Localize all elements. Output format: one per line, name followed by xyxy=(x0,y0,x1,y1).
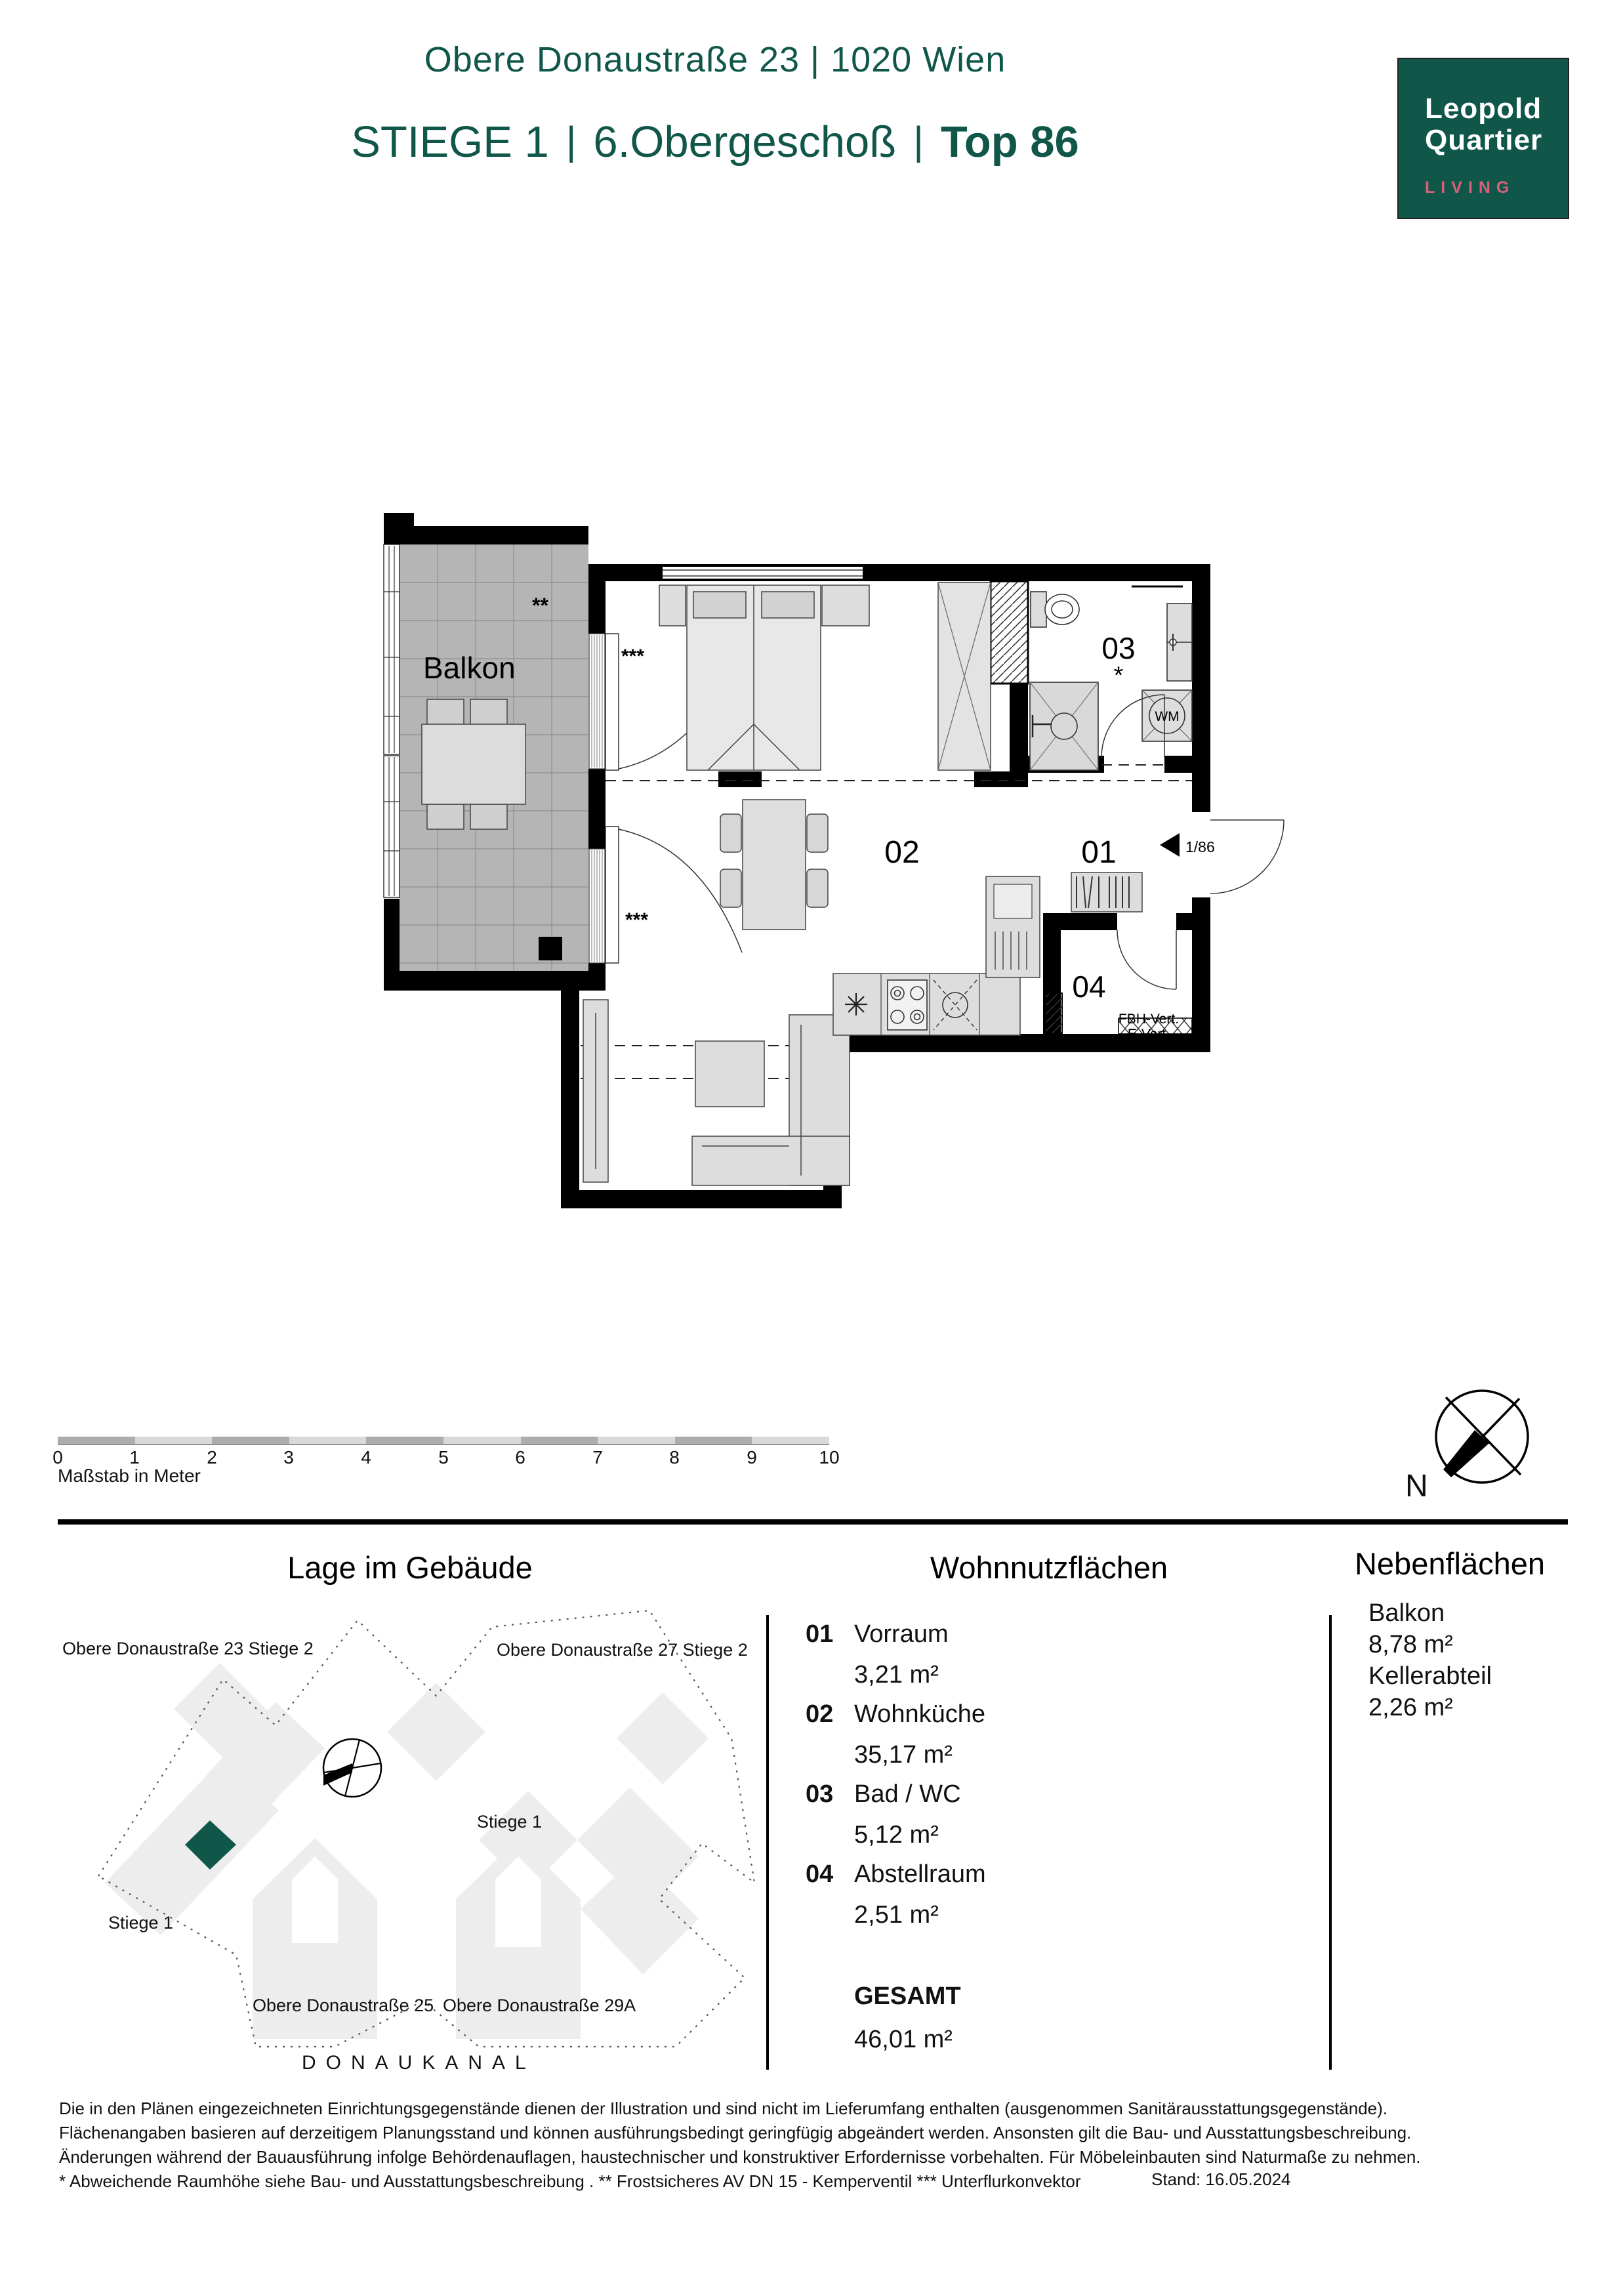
entry-arrow-icon xyxy=(1160,833,1180,857)
floor-label: 6.Obergeschoß xyxy=(593,117,896,167)
wm-label: WM xyxy=(1155,709,1179,724)
room-item-name: Abstellraum xyxy=(854,1860,986,1889)
site-label-27: Obere Donaustraße 27 Stiege 2 xyxy=(497,1640,748,1660)
washbasin xyxy=(1167,604,1192,681)
room-item-num: 01 xyxy=(806,1620,833,1649)
stove xyxy=(888,980,927,1030)
balcony-column xyxy=(539,937,562,960)
logo-line1: Leopold xyxy=(1425,93,1568,125)
room-item-name: Vorraum xyxy=(854,1620,949,1649)
scale-tick: 6 xyxy=(515,1447,525,1468)
scale-tick: 10 xyxy=(819,1447,839,1468)
stiege-label: STIEGE 1 xyxy=(351,117,549,167)
gesamt-area: 46,01 m² xyxy=(854,2026,953,2054)
coffee-table xyxy=(695,1041,764,1107)
frost-valve-marker: ** xyxy=(532,594,548,617)
room-item-area: 5,12 m² xyxy=(854,1821,939,1849)
neben-item-name: Balkon xyxy=(1368,1599,1445,1628)
bed xyxy=(659,585,869,770)
evert-label: E-Vert. xyxy=(1128,1027,1170,1042)
unit-ref-label: 1/86 xyxy=(1185,838,1215,855)
logo-line2: Quartier xyxy=(1425,125,1568,156)
room-item-area: 3,21 m² xyxy=(854,1661,939,1689)
scale-caption: Maßstab in Meter xyxy=(58,1466,201,1486)
room-01-label: 01 xyxy=(1081,835,1116,870)
sideboard xyxy=(583,1000,608,1182)
room-04-label: 04 xyxy=(1072,970,1105,1004)
shower xyxy=(1030,682,1098,770)
site-label-25: Obere Donaustraße 25 xyxy=(253,1996,434,2016)
room-02-label: 02 xyxy=(884,835,919,870)
site-label-29a: Obere Donaustraße 29A xyxy=(443,1996,636,2016)
room-item-area: 35,17 m² xyxy=(854,1741,953,1769)
column-divider-right xyxy=(1329,1615,1332,2070)
scale-tick: 8 xyxy=(669,1447,680,1468)
address-line: Obere Donaustraße 23 | 1020 Wien xyxy=(59,39,1371,80)
fridge xyxy=(986,876,1040,977)
room-item-name: Bad / WC xyxy=(854,1780,961,1809)
footer-disclaimer-1: Die in den Plänen eingezeichneten Einric… xyxy=(59,2097,1502,2121)
fbh-label: FBH-Vert. xyxy=(1119,1012,1179,1027)
footer-disclaimer-3: Änderungen während der Bauausführung inf… xyxy=(59,2145,1502,2169)
column-divider-left xyxy=(766,1615,769,2070)
kitchen-counter xyxy=(833,974,1020,1035)
scale-tick: 4 xyxy=(361,1447,371,1468)
scale-tick: 5 xyxy=(438,1447,449,1468)
room-item-num: 04 xyxy=(806,1860,833,1889)
site-label-stiege1-left: Stiege 1 xyxy=(108,1913,173,1933)
sink-symbol-star xyxy=(845,993,867,1015)
room-item-name: Wohnküche xyxy=(854,1700,985,1729)
dining-set xyxy=(720,800,828,930)
neben-item-name: Kellerabteil xyxy=(1368,1662,1492,1691)
installation-shaft xyxy=(991,581,1028,684)
balcony: Balkon ** xyxy=(400,544,588,971)
wardrobe xyxy=(938,583,991,770)
gesamt-label: GESAMT xyxy=(854,1982,961,2011)
scale-tick: 9 xyxy=(747,1447,757,1468)
room-item-num: 02 xyxy=(806,1700,833,1729)
compass-north-label: N xyxy=(1405,1468,1428,1504)
neben-item-area: 8,78 m² xyxy=(1368,1631,1453,1659)
coat-rack xyxy=(1071,872,1142,912)
separator: | xyxy=(566,118,577,163)
scale-tick: 2 xyxy=(207,1447,217,1468)
wohnnutzflaechen-title: Wohnnutzflächen xyxy=(768,1549,1330,1586)
nebenflaechen-title: Nebenflächen xyxy=(1332,1546,1568,1582)
room-item-num: 03 xyxy=(806,1780,833,1809)
siteplan-compass-icon xyxy=(323,1739,381,1797)
top-number: Top 86 xyxy=(941,117,1079,167)
balcony-door-lower xyxy=(589,827,742,963)
logo-living-label: LIVING xyxy=(1425,178,1568,197)
footer-disclaimer-2: Flächenangaben basieren auf derzeitigem … xyxy=(59,2121,1502,2145)
storage-door xyxy=(1117,930,1176,989)
scale-tick: 7 xyxy=(592,1447,603,1468)
scale-bar xyxy=(58,1437,829,1445)
floorplan-document-page: Obere Donaustraße 23 | 1020 Wien STIEGE … xyxy=(0,0,1623,2296)
section-divider xyxy=(58,1519,1568,1525)
site-label-stiege1-right: Stiege 1 xyxy=(477,1812,542,1832)
convector-marker-lower: *** xyxy=(625,909,648,931)
shaft-small xyxy=(1045,993,1062,1034)
neben-item-area: 2,26 m² xyxy=(1368,1694,1453,1722)
footer-stand-date: Stand: 16.05.2024 xyxy=(1151,2169,1291,2190)
balcony-label: Balkon xyxy=(423,651,516,685)
separator: | xyxy=(913,118,924,163)
site-label-23: Obere Donaustraße 23 Stiege 2 xyxy=(62,1639,314,1659)
unit-title-line: STIEGE 1 | 6.Obergeschoß | Top 86 xyxy=(59,117,1371,167)
toilet xyxy=(1031,592,1079,627)
room-item-area: 2,51 m² xyxy=(854,1901,939,1929)
room-03-label: 03 xyxy=(1101,631,1135,665)
document-header: Obere Donaustraße 23 | 1020 Wien STIEGE … xyxy=(59,39,1371,167)
convector-marker-upper: *** xyxy=(621,646,644,667)
floorplan-drawing: Balkon ** xyxy=(364,493,1302,1241)
leopold-quartier-logo: Leopold Quartier LIVING xyxy=(1397,58,1569,219)
room-03-star: * xyxy=(1114,662,1124,689)
washing-machine: WM xyxy=(1142,690,1192,741)
scale-tick: 3 xyxy=(283,1447,294,1468)
donaukanal-label: DONAUKANAL xyxy=(302,2052,536,2074)
